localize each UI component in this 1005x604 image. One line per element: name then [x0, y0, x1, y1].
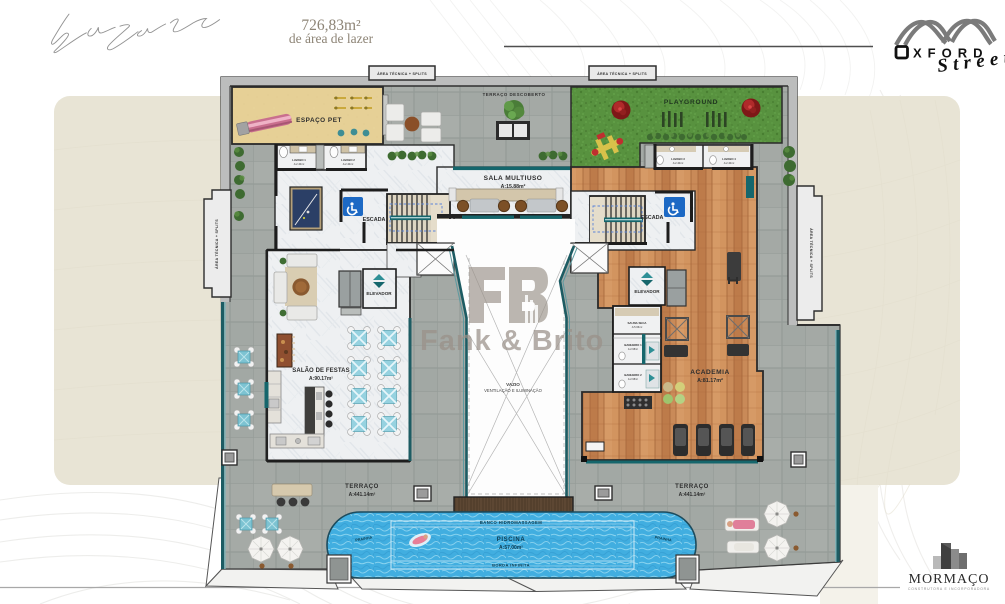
svg-text:LAVABO 4: LAVABO 4 [722, 157, 736, 161]
svg-text:VENTILAÇÃO E ILUMINAÇÃO: VENTILAÇÃO E ILUMINAÇÃO [484, 388, 542, 393]
svg-text:de área de lazer: de área de lazer [289, 31, 374, 46]
svg-text:A:57.00m²: A:57.00m² [499, 545, 523, 551]
svg-text:A:441.14m²: A:441.14m² [349, 492, 376, 498]
svg-text:ELEVADOR: ELEVADOR [366, 291, 392, 296]
svg-text:TERRAÇO: TERRAÇO [675, 484, 709, 490]
svg-text:LAVABO 3: LAVABO 3 [671, 157, 685, 161]
svg-text:BANHEIRO 2: BANHEIRO 2 [624, 373, 642, 377]
svg-text:ÁREA TÉCNICA + SPLITS: ÁREA TÉCNICA + SPLITS [214, 219, 219, 269]
svg-text:SALA MULTIUSO: SALA MULTIUSO [484, 175, 543, 182]
svg-text:ÁREA TÉCNICA + SPLITS: ÁREA TÉCNICA + SPLITS [809, 228, 814, 278]
svg-text:A:2.68m²: A:2.68m² [628, 378, 638, 381]
svg-text:LAVABO 2: LAVABO 2 [341, 158, 355, 162]
svg-text:ÁREA TÉCNICA + SPLITS: ÁREA TÉCNICA + SPLITS [597, 71, 647, 76]
svg-text:ACADEMIA: ACADEMIA [690, 369, 730, 376]
svg-text:SAUNA SECA: SAUNA SECA [627, 321, 647, 325]
svg-text:TERRAÇO DESCOBERTO: TERRAÇO DESCOBERTO [483, 92, 546, 97]
svg-text:ESCADA: ESCADA [363, 217, 386, 223]
svg-text:CONSTRUTORA E INCORPORADORA: CONSTRUTORA E INCORPORADORA [908, 587, 990, 591]
svg-text:ELEVADOR: ELEVADOR [634, 289, 660, 294]
svg-text:MORMAÇO: MORMAÇO [909, 572, 990, 587]
svg-text:PLAYGROUND: PLAYGROUND [664, 99, 718, 106]
svg-text:ÁREA TÉCNICA + SPLITS: ÁREA TÉCNICA + SPLITS [377, 71, 427, 76]
svg-text:PISCINA: PISCINA [497, 537, 526, 543]
svg-text:BORDA INFINITA: BORDA INFINITA [492, 563, 530, 568]
svg-text:A:90.17m²: A:90.17m² [309, 376, 333, 382]
svg-text:SALÃO DE FESTAS: SALÃO DE FESTAS [292, 367, 349, 374]
svg-text:A:5.66m²: A:5.66m² [632, 325, 643, 329]
svg-text:TERRAÇO: TERRAÇO [345, 484, 379, 490]
svg-text:Fank & Brito: Fank & Brito [420, 325, 604, 357]
svg-text:A:2.40m²: A:2.40m² [343, 162, 354, 166]
svg-text:VAZIO: VAZIO [506, 382, 520, 387]
svg-text:A:441.14m²: A:441.14m² [679, 492, 706, 498]
svg-text:LAVABO 1: LAVABO 1 [292, 158, 306, 162]
svg-text:ESCADA: ESCADA [641, 215, 664, 221]
svg-text:A:81.17m²: A:81.17m² [697, 378, 723, 384]
svg-text:BANCO HIDROMASSAGEM: BANCO HIDROMASSAGEM [480, 520, 542, 525]
svg-text:A:2.40m²: A:2.40m² [724, 161, 735, 165]
svg-text:ESPAÇO PET: ESPAÇO PET [296, 117, 342, 124]
svg-text:A:2.68m²: A:2.68m² [628, 348, 638, 351]
svg-text:A:2.40m²: A:2.40m² [294, 162, 305, 166]
svg-text:A:2.40m²: A:2.40m² [673, 161, 684, 165]
svg-text:BANHEIRO 1: BANHEIRO 1 [624, 343, 642, 347]
